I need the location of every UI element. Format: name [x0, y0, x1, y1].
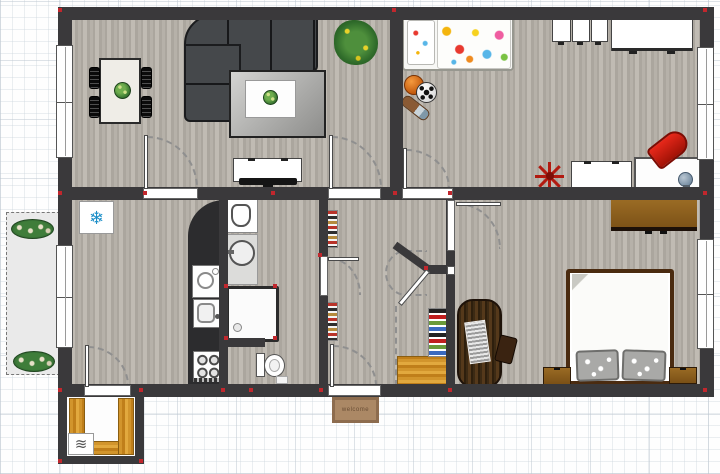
wall-point[interactable]	[703, 191, 707, 195]
wall-shower[interactable]	[224, 338, 265, 347]
sauna-bench[interactable]	[69, 398, 85, 436]
door-leaf	[403, 148, 407, 189]
sideboard-handle	[584, 161, 591, 164]
wall-point[interactable]	[271, 191, 275, 195]
door-living-hall[interactable]	[328, 188, 381, 199]
wall-point[interactable]	[143, 191, 147, 195]
bed-pillow	[621, 349, 666, 382]
wall-point[interactable]	[58, 388, 62, 392]
door-leaf	[85, 345, 89, 387]
dish-cup	[212, 268, 219, 275]
dining-chair[interactable]	[141, 96, 152, 118]
wall-point[interactable]	[273, 336, 277, 340]
wall-point[interactable]	[224, 336, 228, 340]
cabinet-handle	[577, 42, 583, 45]
wall-living-kids[interactable]	[390, 7, 403, 200]
closet-opening	[395, 306, 397, 386]
door-bathroom[interactable]	[320, 256, 328, 296]
sauna-bench[interactable]	[93, 441, 119, 455]
dining-chair[interactable]	[141, 67, 152, 89]
table-plant[interactable]	[114, 82, 131, 99]
door-leaf	[329, 135, 333, 189]
dresser-handle	[667, 51, 675, 54]
wall-point[interactable]	[448, 191, 452, 195]
wall-point[interactable]	[448, 388, 452, 392]
shoe-rack[interactable]	[428, 308, 448, 357]
flower-planter[interactable]	[13, 351, 55, 372]
cabinet-handle	[558, 42, 564, 45]
bed-pillow	[575, 349, 619, 381]
sauna-bench[interactable]	[118, 398, 134, 455]
coffee-table-plant[interactable]	[263, 90, 278, 105]
wall-point[interactable]	[224, 284, 228, 288]
wall-point[interactable]	[318, 253, 322, 257]
nightstand-handle	[680, 368, 686, 370]
wall-point[interactable]	[58, 459, 62, 463]
door-leaf	[328, 257, 359, 261]
door-bedroom[interactable]	[447, 200, 455, 251]
bath-bin[interactable]	[276, 376, 288, 384]
wall-point[interactable]	[58, 191, 62, 195]
kids-dresser[interactable]	[611, 18, 693, 51]
nightstand-handle	[554, 368, 560, 370]
door-entrance[interactable]	[328, 385, 381, 396]
window-living[interactable]	[56, 45, 73, 158]
sink-basin	[197, 303, 215, 323]
wall-sauna-bottom[interactable]	[58, 456, 144, 464]
soccer-ball[interactable]	[416, 82, 437, 103]
door-leaf	[144, 135, 148, 189]
wall-point[interactable]	[703, 388, 707, 392]
washer-drum	[231, 204, 251, 227]
dining-chair[interactable]	[89, 96, 100, 118]
kids-dresser-front	[612, 48, 692, 51]
kids-pillow	[407, 20, 435, 65]
wall-point[interactable]	[319, 388, 323, 392]
dresser-handle	[629, 51, 637, 54]
wall-top[interactable]	[58, 7, 714, 20]
wall-cabinet[interactable]	[572, 18, 590, 42]
potted-plant[interactable]	[334, 20, 378, 65]
drying-rack-hub	[546, 172, 554, 180]
tv-stand-handle	[248, 158, 255, 161]
tv-stand-handle	[281, 158, 288, 161]
welcome-mat[interactable]: welcome	[332, 397, 379, 423]
wall-point[interactable]	[703, 8, 707, 12]
dish-plate	[197, 272, 214, 289]
dining-chair[interactable]	[89, 67, 100, 89]
stove-panel	[194, 378, 222, 382]
window-kitchen[interactable]	[56, 245, 73, 348]
wall-point[interactable]	[58, 8, 62, 12]
bedroom-shelf[interactable]	[611, 200, 697, 230]
wall-point[interactable]	[424, 266, 428, 270]
shower[interactable]	[226, 286, 279, 342]
wall-node[interactable]	[447, 266, 455, 275]
wall-cabinet[interactable]	[552, 18, 571, 42]
shelf-handle	[645, 231, 652, 234]
wall-point[interactable]	[249, 388, 253, 392]
fridge-freezer[interactable]: ❄	[79, 201, 114, 234]
door-leaf	[330, 344, 334, 387]
door-sauna[interactable]	[84, 385, 131, 396]
sauna-heater[interactable]: ≋	[68, 433, 94, 455]
wall-point[interactable]	[273, 284, 277, 288]
kids-blanket	[437, 18, 511, 69]
sideboard-handle	[612, 161, 619, 164]
window-bedroom[interactable]	[697, 239, 714, 349]
wall-sauna-left[interactable]	[58, 394, 67, 464]
cabinet-handle	[595, 42, 601, 45]
wall-point[interactable]	[139, 388, 143, 392]
door-living-kitchen[interactable]	[143, 188, 198, 199]
wall-cabinet[interactable]	[591, 18, 608, 42]
wall-sauna-right[interactable]	[135, 394, 144, 464]
door-leaf	[456, 202, 501, 206]
flower-planter[interactable]	[11, 219, 54, 239]
window-kids[interactable]	[697, 47, 714, 160]
wall-point[interactable]	[392, 8, 396, 12]
wall-point[interactable]	[139, 459, 143, 463]
shelf-handle	[660, 231, 667, 234]
duvet	[572, 274, 668, 352]
shower-drain	[233, 323, 242, 332]
toilet-bowl-inner	[269, 359, 280, 372]
floor-plan-canvas: ❄≋welcome	[0, 0, 720, 474]
door-kids-room[interactable]	[402, 188, 453, 199]
bedroom-shelf-front	[611, 227, 697, 231]
wall-point[interactable]	[393, 191, 397, 195]
wall-kitchen-bath[interactable]	[219, 194, 228, 389]
wall-point[interactable]	[221, 388, 225, 392]
wall-bottom[interactable]	[58, 384, 714, 397]
